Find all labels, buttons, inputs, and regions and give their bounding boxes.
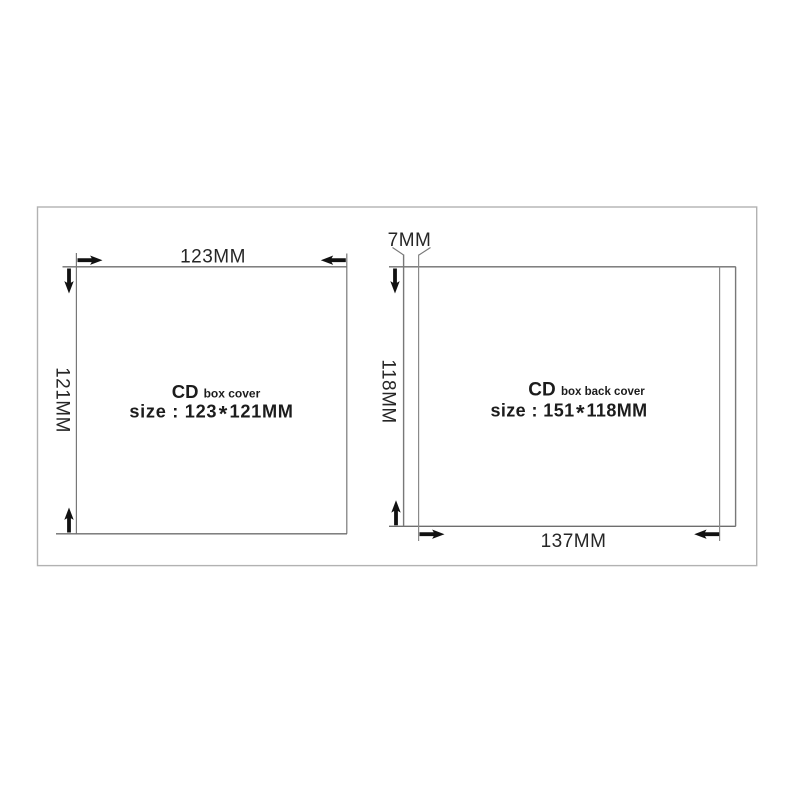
svg-text:123MM: 123MM (180, 247, 246, 268)
svg-text:118MM: 118MM (378, 359, 399, 423)
svg-text:121MM: 121MM (52, 367, 73, 433)
svg-text:7MM: 7MM (388, 230, 432, 251)
svg-text:137MM: 137MM (541, 531, 607, 552)
